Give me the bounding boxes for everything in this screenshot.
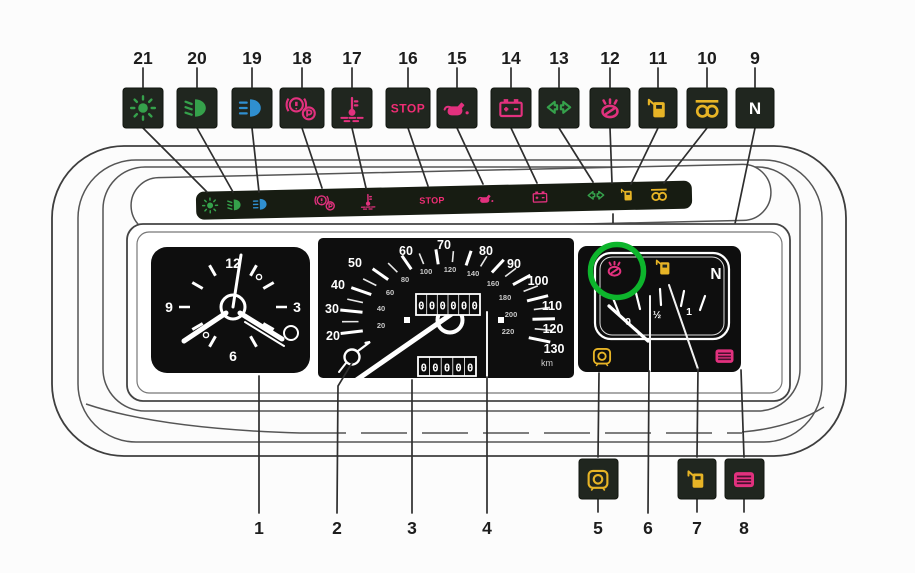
clock-panel: 12 3 6 9 — [151, 247, 310, 373]
svg-text:80: 80 — [401, 275, 409, 284]
callout-number-7: 7 — [692, 518, 702, 538]
strip-side-lights-icon — [203, 198, 218, 213]
callout-number-9: 9 — [750, 48, 760, 68]
svg-text:40: 40 — [377, 304, 385, 313]
neutral-indicator: N — [710, 266, 721, 283]
clock-numeral-6: 6 — [229, 348, 237, 364]
bottom-legend: 1 2 3 4 5 6 7 8 — [254, 459, 764, 538]
svg-text:130: 130 — [544, 342, 565, 356]
callout-number-2: 2 — [332, 518, 342, 538]
svg-text:30: 30 — [325, 302, 339, 316]
callout-number-6: 6 — [643, 518, 653, 538]
strip-stop-warning: STOP — [419, 195, 445, 206]
svg-text:90: 90 — [507, 257, 521, 271]
svg-text:0: 0 — [429, 301, 435, 313]
main-beam-icon — [240, 99, 261, 116]
svg-text:100: 100 — [420, 267, 433, 276]
svg-text:160: 160 — [487, 279, 500, 288]
instrument-cluster-diagram: STOP — [0, 0, 915, 573]
side-lights-icon — [131, 96, 155, 119]
callout-number-1: 1 — [254, 518, 264, 538]
callout-number-12: 12 — [600, 48, 620, 68]
indicator-box-14 — [491, 88, 531, 128]
heated-rear-window-icon — [716, 349, 734, 363]
svg-text:120: 120 — [543, 322, 564, 336]
svg-text:½: ½ — [653, 310, 661, 321]
heated-rear-window-legend-icon — [734, 472, 754, 487]
callout-number-20: 20 — [187, 48, 207, 68]
svg-text:110: 110 — [542, 299, 562, 313]
callout-number-18: 18 — [292, 48, 312, 68]
odometer: 0 0 0 0 0 0 — [416, 294, 480, 315]
svg-text:0: 0 — [432, 363, 438, 375]
fuel-panel: N 0 ½ 1 — [578, 246, 741, 372]
callout-number-3: 3 — [407, 518, 417, 538]
callout-number-19: 19 — [242, 48, 262, 68]
svg-text:0: 0 — [455, 363, 461, 375]
callout-number-21: 21 — [133, 48, 153, 68]
top-legend: 21 20 19 18 17 16 15 14 13 12 11 10 9 ST… — [123, 48, 774, 128]
svg-text:70: 70 — [437, 238, 451, 252]
instrument-cluster-diagram-page: STOP — [0, 0, 915, 573]
callout-number-13: 13 — [549, 48, 569, 68]
callout-number-5: 5 — [593, 518, 603, 538]
callout-number-17: 17 — [342, 48, 361, 68]
svg-text:0: 0 — [418, 301, 424, 313]
callout-number-15: 15 — [447, 48, 467, 68]
callout-number-16: 16 — [398, 48, 418, 68]
svg-text:200: 200 — [505, 310, 518, 319]
stop-warning-label: STOP — [391, 102, 425, 116]
svg-text:0: 0 — [440, 301, 446, 313]
callout-number-8: 8 — [739, 518, 749, 538]
svg-text:40: 40 — [331, 278, 345, 292]
svg-text:60: 60 — [386, 288, 394, 297]
svg-text:1: 1 — [686, 306, 692, 318]
clock-numeral-3: 3 — [293, 299, 301, 315]
svg-text:180: 180 — [499, 293, 512, 302]
svg-text:60: 60 — [399, 244, 413, 258]
trip-odometer: 0 0 0 0 0 — [418, 357, 476, 376]
svg-text:0: 0 — [467, 363, 473, 375]
speedo-unit-label: km — [541, 358, 553, 368]
callout-number-11: 11 — [649, 48, 668, 68]
neutral-label: N — [749, 99, 761, 118]
indicator-box-12 — [590, 88, 630, 128]
svg-text:220: 220 — [502, 327, 515, 336]
svg-text:0: 0 — [461, 301, 467, 313]
svg-text:0: 0 — [472, 301, 478, 313]
svg-text:0: 0 — [450, 301, 456, 313]
lower-edge-line — [86, 404, 300, 433]
callout-number-4: 4 — [482, 518, 492, 538]
svg-text:0: 0 — [421, 363, 427, 375]
svg-text:20: 20 — [326, 329, 340, 343]
svg-text:80: 80 — [479, 244, 493, 258]
clock-numeral-9: 9 — [165, 299, 173, 315]
svg-text:20: 20 — [377, 321, 385, 330]
indicator-box-5 — [579, 459, 618, 499]
callout-number-10: 10 — [697, 48, 717, 68]
svg-text:100: 100 — [528, 274, 549, 288]
speedometer-panel: 20 30 40 50 60 70 80 90 100 110 120 130 … — [318, 238, 574, 381]
svg-text:120: 120 — [444, 265, 457, 274]
svg-text:0: 0 — [444, 363, 450, 375]
svg-text:140: 140 — [467, 269, 480, 278]
indicator-box-13 — [539, 88, 579, 128]
callout-number-14: 14 — [501, 48, 521, 68]
dipped-beam-icon — [186, 99, 206, 116]
svg-text:50: 50 — [348, 256, 362, 270]
